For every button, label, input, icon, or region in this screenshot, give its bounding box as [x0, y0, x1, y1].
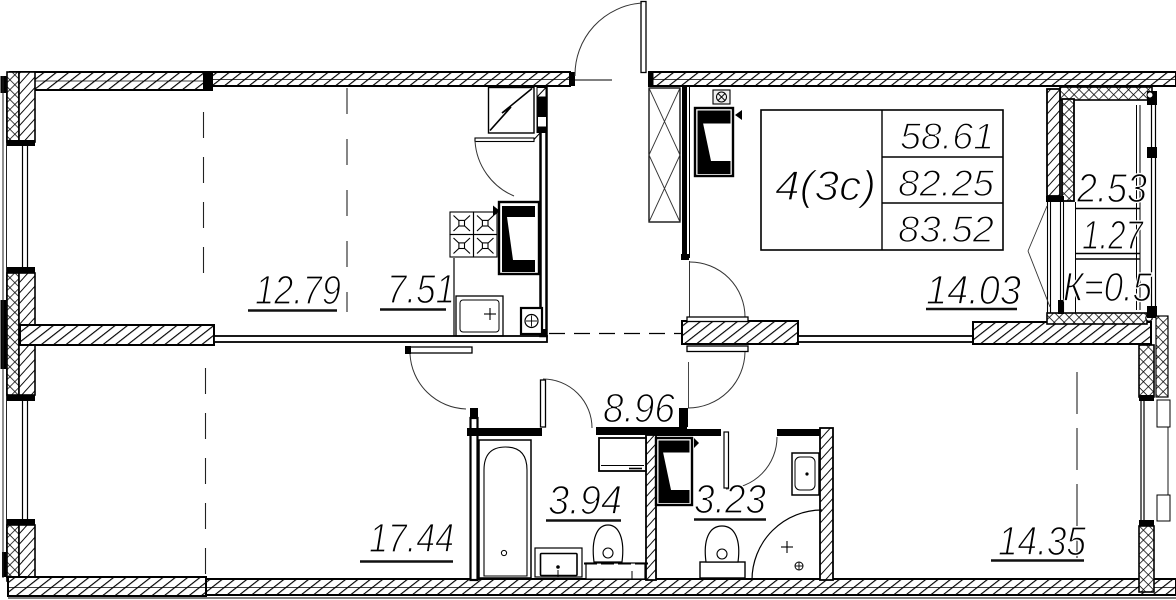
- svg-text:14.35: 14.35: [998, 518, 1086, 564]
- svg-text:2.53: 2.53: [1076, 165, 1147, 211]
- svg-text:К=0.5: К=0.5: [1063, 264, 1152, 310]
- svg-text:7.51: 7.51: [387, 266, 455, 312]
- svg-text:17.44: 17.44: [369, 515, 454, 561]
- svg-text:3.94: 3.94: [548, 477, 622, 523]
- svg-text:58.61: 58.61: [900, 116, 994, 157]
- svg-text:82.25: 82.25: [898, 163, 994, 204]
- svg-text:1.27: 1.27: [1082, 212, 1145, 258]
- svg-text:14.03: 14.03: [926, 267, 1021, 313]
- svg-text:12.79: 12.79: [255, 267, 341, 313]
- svg-text:83.52: 83.52: [898, 209, 994, 250]
- svg-text:8.96: 8.96: [603, 385, 675, 431]
- svg-text:3.23: 3.23: [694, 476, 766, 522]
- svg-text:4(3с): 4(3с): [775, 162, 876, 209]
